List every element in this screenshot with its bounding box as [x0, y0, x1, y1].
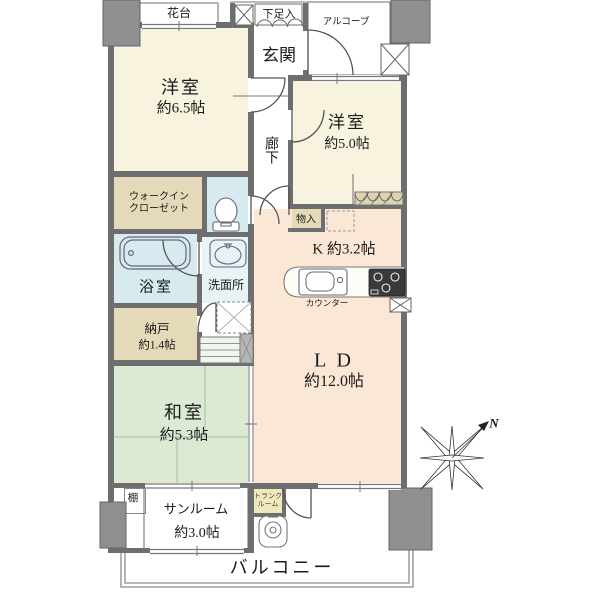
floor-plan: 花台 下足入 玄関 アルコーブ 洋室 約6.5帖 廊下 洋室 約5.0帖 物入 … — [0, 0, 600, 600]
label-yokushitsu: 浴室 — [139, 279, 173, 296]
label-trunk-line1: トランク — [254, 492, 282, 500]
label-tana: 棚 — [128, 493, 139, 505]
label-nando-size: 約1.4帖 — [138, 339, 175, 352]
shelf-icon — [200, 334, 253, 363]
label-balcony: バルコニー — [230, 558, 335, 579]
slop-sink-icon — [259, 516, 287, 547]
label-nando: 納戸 — [144, 322, 169, 336]
label-sunroom: サンルーム — [164, 503, 229, 518]
label-kitchen: K 約3.2帖 — [312, 241, 375, 258]
label-yoshitsu50: 洋室 — [328, 113, 366, 133]
label-trunk-line2: ルーム — [258, 500, 279, 508]
label-sunroom-size: 約3.0帖 — [174, 526, 220, 542]
label-alcove: アルコーブ — [323, 18, 370, 29]
label-wic-line2: クローゼット — [129, 203, 189, 214]
label-washitsu: 和室 — [164, 403, 204, 424]
label-compass-north: N — [489, 417, 498, 432]
compass-icon — [390, 396, 514, 520]
label-yoshitsu65-size: 約6.5帖 — [157, 100, 206, 117]
label-ld-size: 約12.0帖 — [304, 373, 364, 391]
label-washitsu-size: 約5.3帖 — [160, 427, 209, 444]
label-wic-line1: ウォークイン — [129, 192, 189, 203]
label-kadai: 花台 — [167, 7, 191, 21]
label-ld: L D — [314, 350, 354, 373]
room-japanese-5_3 — [114, 366, 248, 483]
label-yoshitsu65: 洋室 — [161, 78, 201, 99]
label-senmenjo: 洗面所 — [208, 279, 244, 293]
label-counter: カウンター — [306, 299, 349, 309]
label-wic: ウォークイン クローゼット — [129, 192, 189, 215]
label-roka: 廊下 — [262, 136, 278, 164]
label-yoshitsu50-size: 約5.0帖 — [324, 137, 370, 153]
washer-space-icon — [217, 302, 251, 333]
label-monoire: 物入 — [296, 214, 316, 226]
label-genkan: 玄関 — [262, 46, 296, 66]
label-trunk: トランク ルーム — [254, 492, 282, 508]
room-washroom — [202, 237, 248, 303]
room-toilet — [207, 177, 248, 232]
label-shitasokuire: 下足入 — [263, 9, 296, 22]
